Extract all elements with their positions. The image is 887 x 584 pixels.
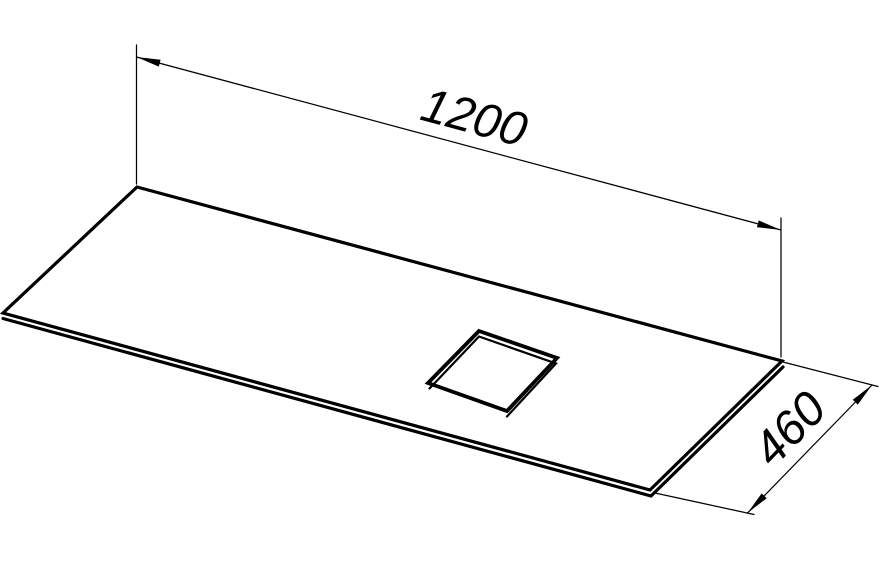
dimension-label-depth: 460 — [743, 382, 837, 477]
technical-drawing-canvas: 1200 460 — [0, 0, 887, 584]
dimension-label-length: 1200 — [416, 79, 533, 158]
dimension-line-length — [137, 57, 782, 230]
arrowhead-depth-lower — [748, 493, 767, 513]
arrowhead-length-left — [137, 57, 161, 67]
extension-line-depth-lower — [655, 493, 754, 515]
drawing-page: 1200 460 — [0, 0, 887, 584]
panel-top-face — [3, 187, 782, 490]
arrowhead-length-right — [757, 220, 781, 230]
arrowhead-depth-upper — [853, 385, 872, 405]
